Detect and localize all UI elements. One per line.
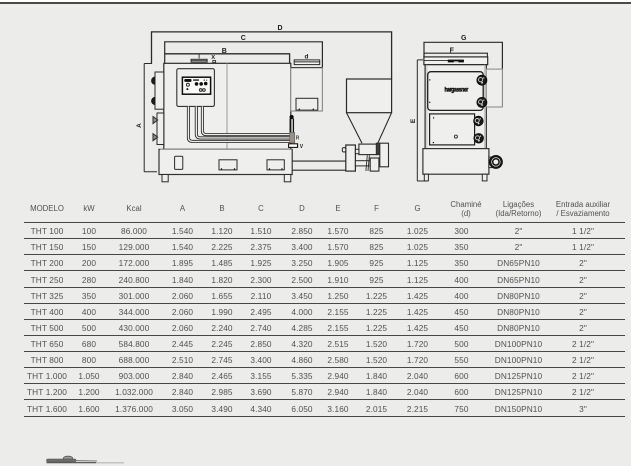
- svg-text:G: G: [461, 35, 467, 42]
- svg-text:A: A: [136, 123, 143, 128]
- svg-text:C: C: [241, 35, 246, 42]
- svg-text:D: D: [278, 25, 283, 32]
- svg-text:B: B: [222, 48, 227, 55]
- svg-text:F: F: [450, 47, 455, 54]
- svg-text:d: d: [305, 54, 309, 61]
- svg-text:X: X: [211, 55, 215, 61]
- svg-text:E: E: [410, 118, 417, 123]
- svg-text:R: R: [296, 135, 300, 141]
- svg-text:V: V: [300, 144, 304, 150]
- svg-text:hargassner: hargassner: [444, 88, 468, 94]
